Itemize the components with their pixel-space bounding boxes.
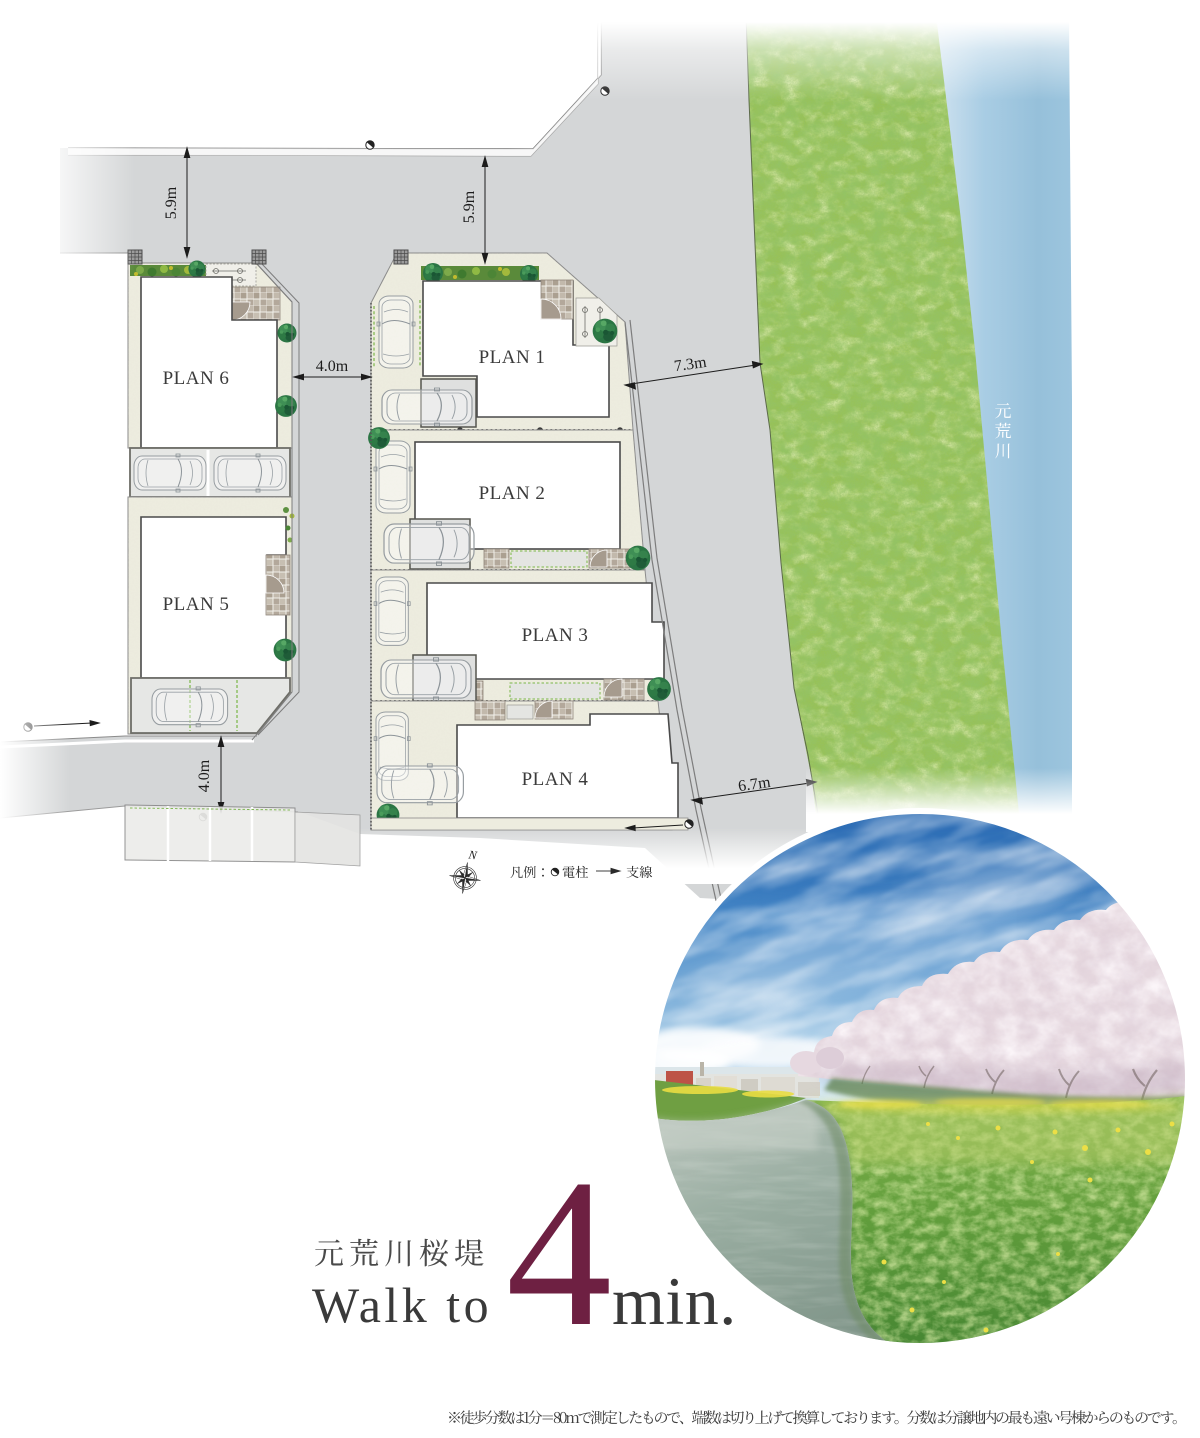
svg-text:min.: min. bbox=[612, 1263, 737, 1339]
svg-text:4.0m: 4.0m bbox=[196, 759, 213, 792]
svg-text:PLAN 6: PLAN 6 bbox=[163, 368, 230, 389]
svg-text:PLAN 4: PLAN 4 bbox=[522, 769, 589, 790]
svg-text:4.0m: 4.0m bbox=[316, 358, 349, 375]
svg-text:PLAN 3: PLAN 3 bbox=[522, 625, 589, 646]
svg-text:5.9m: 5.9m bbox=[163, 186, 180, 219]
svg-text:Walk to: Walk to bbox=[312, 1277, 492, 1333]
svg-text:5.9m: 5.9m bbox=[461, 190, 478, 223]
svg-text:PLAN 2: PLAN 2 bbox=[479, 483, 546, 504]
svg-text:PLAN 5: PLAN 5 bbox=[163, 594, 230, 615]
svg-text:4: 4 bbox=[506, 1135, 612, 1370]
svg-text:PLAN 1: PLAN 1 bbox=[479, 347, 546, 368]
